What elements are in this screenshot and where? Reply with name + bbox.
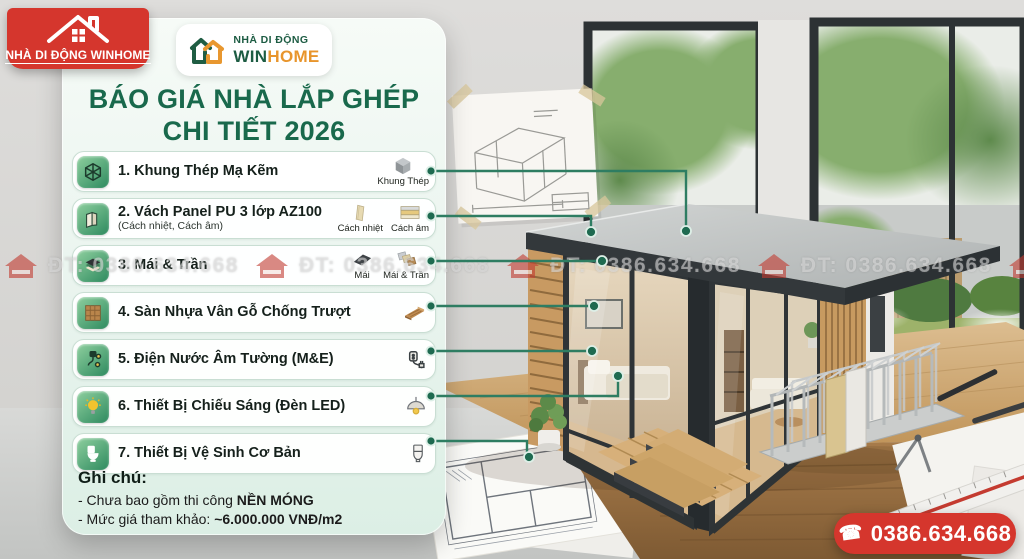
list-item-chieu-sang: 6. Thiết Bị Chiếu Sáng (Đèn LED): [72, 386, 436, 427]
note-line: - Chưa bao gồm thi công NỀN MÓNG: [78, 492, 342, 508]
logo-line1: NHÀ DI ĐỘNG: [233, 35, 319, 46]
toilet-icon: [77, 438, 109, 470]
list-item-dien-nuoc: 5. Điện Nước Âm Tường (M&E): [72, 339, 436, 380]
steel-frame-cube-icon: [77, 156, 109, 188]
notes: Ghi chú: - Chưa bao gồm thi công NỀN MÓN…: [78, 468, 342, 530]
light-bulb-icon: [77, 391, 109, 423]
phone-icon: ☎: [837, 520, 864, 546]
socket-plug-icon: [405, 349, 429, 371]
toilet-outline-icon: [407, 443, 429, 465]
roof-ceiling-panels-icon: Mái & Trần: [383, 250, 429, 281]
insulation-panel-icon: Cách nhiệt: [338, 203, 383, 234]
layered-acoustic-panel-icon: Cách âm: [391, 203, 429, 234]
electric-plug-icon: [77, 344, 109, 376]
page-title: BÁO GIÁ NHÀ LẮP GHÉP CHI TIẾT 2026: [62, 84, 446, 148]
roof-sheet-icon: Mái: [349, 250, 375, 281]
pendant-lamp-icon: [403, 396, 429, 418]
pricing-card: NHÀ DI ĐỘNG WINHOME BÁO GIÁ NHÀ LẮP GHÉP…: [62, 18, 446, 535]
wall-panel-icon: [77, 203, 109, 235]
brand-logo: NHÀ DI ĐỘNG WINHOME: [176, 24, 332, 76]
list-item-khung-thep: 1. Khung Thép Mạ Kẽm Khung Thép: [72, 151, 436, 192]
notes-heading: Ghi chú:: [78, 468, 342, 488]
component-list: 1. Khung Thép Mạ Kẽm Khung Thép 2. Vách …: [72, 151, 436, 480]
list-item-san-nhua: 4. Sàn Nhựa Vân Gỗ Chống Trượt: [72, 292, 436, 333]
infographic-poster: ĐT: 0386.634.668 ĐT: 0386.634.668 ĐT: 03…: [0, 0, 1024, 559]
list-item-mai-tran: 3. Mái & Trần Mái Mái & Trần: [72, 245, 436, 286]
badge-label: NHÀ DI ĐỘNG WINHOME: [5, 48, 150, 64]
winhome-double-house-icon: [188, 34, 226, 66]
roof-layers-icon: [77, 250, 109, 282]
gray-cube-icon: Khung Thép: [377, 156, 429, 187]
wood-plank-icon: [401, 303, 429, 323]
note-line: - Mức giá tham khảo: ~6.000.000 VNĐ/m2: [78, 511, 342, 527]
list-item-vach-panel: 2. Vách Panel PU 3 lớp AZ100 (Cách nhiệt…: [72, 198, 436, 239]
red-house-icon: [43, 11, 113, 47]
phone-number: 0386.634.668: [871, 521, 1012, 547]
corner-brand-badge: NHÀ DI ĐỘNG WINHOME: [7, 8, 149, 69]
wall-sketch-paper: [446, 77, 612, 231]
logo-line2: WINHOME: [233, 48, 319, 65]
phone-button[interactable]: ☎ 0386.634.668: [834, 513, 1016, 554]
wood-floor-icon: [77, 297, 109, 329]
